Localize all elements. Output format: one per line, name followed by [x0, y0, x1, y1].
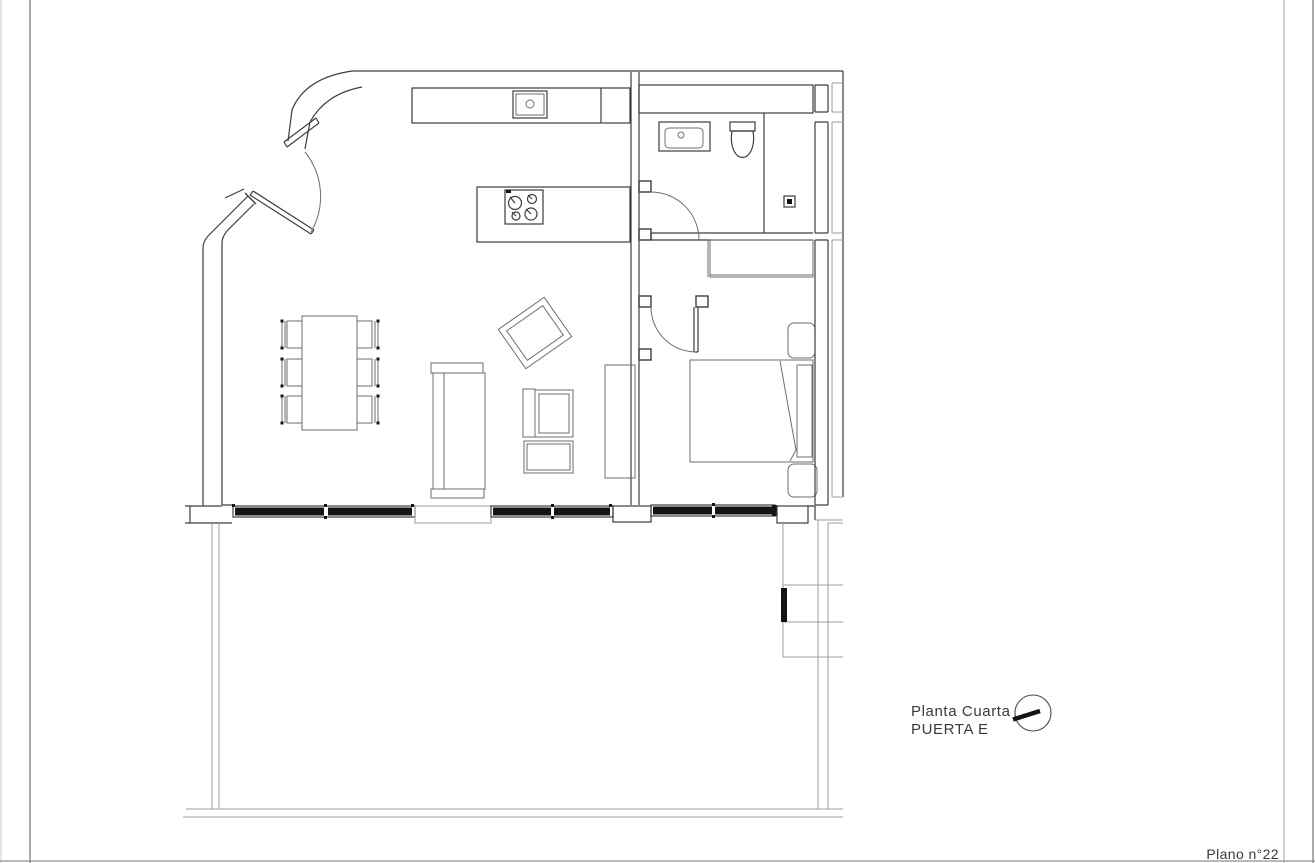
bed — [690, 360, 813, 462]
cooktop — [505, 190, 543, 224]
plan-title-line2: PUERTA E — [911, 721, 989, 738]
bathroom-bottom-wall — [651, 233, 813, 240]
drawing-sheet: Planta Cuarta PUERTA E Plano n°22 — [0, 0, 1315, 863]
chair — [357, 395, 380, 425]
bedroom-door — [651, 307, 698, 352]
armchair — [523, 389, 573, 473]
sofa — [431, 363, 485, 498]
living-room-window-right — [491, 504, 613, 519]
bedroom — [690, 240, 817, 497]
neighbour-annex — [781, 523, 843, 657]
shower-drain — [784, 196, 795, 207]
dining-chairs-right — [357, 320, 380, 425]
nightstand-top — [788, 323, 815, 358]
plan-number-label: Plano n°22 — [1206, 846, 1279, 862]
bedroom-door-swing-arc — [651, 307, 696, 352]
terrace-parapet — [183, 520, 843, 817]
floor-plan-svg: Planta Cuarta PUERTA E Plano n°22 — [0, 0, 1315, 863]
kitchen-sink — [513, 91, 547, 118]
sheet-border-right — [1284, 0, 1313, 863]
entrance-door — [250, 118, 321, 234]
kitchen-island — [477, 187, 630, 242]
dining-chairs-left — [281, 320, 303, 425]
entry-door-swing-arc — [305, 152, 321, 232]
toilet — [730, 122, 755, 158]
chair — [281, 395, 303, 425]
bed-headboard — [797, 365, 812, 457]
bedroom-window — [651, 503, 777, 518]
neighbour-window-glazing — [781, 588, 787, 622]
facade-pier — [613, 506, 651, 522]
plan-title-line1: Planta Cuarta — [911, 703, 1011, 720]
bedroom-door-leaf — [694, 307, 698, 352]
living-room-window-left — [232, 504, 415, 519]
kitchen — [412, 88, 630, 242]
orientation-marker-icon — [1013, 695, 1051, 731]
bathroom-top-band — [639, 85, 813, 113]
neighbour-wall-stubs — [832, 83, 843, 497]
sheet-border-left — [1, 0, 30, 863]
dining-table — [302, 316, 357, 430]
chair — [357, 358, 380, 388]
chair — [281, 358, 303, 388]
chair — [357, 320, 380, 350]
right-wall — [815, 85, 828, 505]
facade-corner-pier — [777, 506, 843, 523]
title-annotation: Planta Cuarta PUERTA E — [911, 695, 1051, 738]
exterior-walls — [185, 71, 843, 523]
washbasin — [659, 122, 710, 151]
living-room — [281, 297, 636, 498]
armchair-rotated — [498, 297, 571, 368]
terrace-door-threshold — [415, 506, 491, 523]
chair — [281, 320, 303, 350]
bathroom — [639, 85, 813, 240]
wardrobe — [708, 240, 813, 277]
duvet-fold-line — [780, 361, 796, 461]
entry-door-leaf — [250, 191, 314, 234]
hallway-spine-wall — [631, 72, 708, 505]
nightstand-bottom — [788, 464, 817, 497]
